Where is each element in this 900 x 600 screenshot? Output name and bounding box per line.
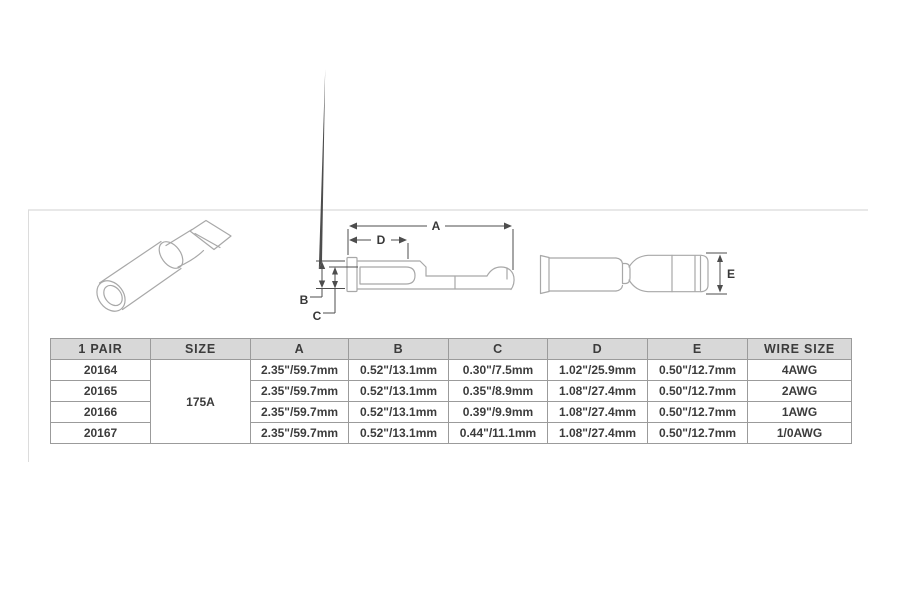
technical-drawing: A D B C bbox=[0, 0, 900, 600]
dim-c-cell: 0.39"/9.9mm bbox=[449, 402, 548, 423]
part-number-cell: 20167 bbox=[51, 423, 151, 444]
dimension-b-label: B bbox=[300, 293, 309, 307]
dim-d-cell: 1.08"/27.4mm bbox=[548, 381, 648, 402]
perspective-view bbox=[91, 221, 231, 317]
dim-d-cell: 1.08"/27.4mm bbox=[548, 423, 648, 444]
dimension-e-label: E bbox=[727, 267, 735, 281]
dimension-c-label: C bbox=[313, 309, 322, 323]
dimension-a-label: A bbox=[432, 219, 441, 233]
size-cell: 175A bbox=[151, 360, 251, 444]
dim-a-cell: 2.35"/59.7mm bbox=[251, 402, 349, 423]
side-view-dimensions: A D B C bbox=[300, 69, 513, 323]
header-row: 1 PAIR SIZE A B C D E WIRE SIZE bbox=[51, 339, 852, 360]
dim-b-cell: 0.52"/13.1mm bbox=[349, 381, 449, 402]
wire-size-cell: 4AWG bbox=[748, 360, 852, 381]
dim-b-cell: 0.52"/13.1mm bbox=[349, 423, 449, 444]
dim-e-cell: 0.50"/12.7mm bbox=[648, 381, 748, 402]
dim-a-cell: 2.35"/59.7mm bbox=[251, 381, 349, 402]
dim-b-cell: 0.52"/13.1mm bbox=[349, 360, 449, 381]
top-view bbox=[541, 255, 709, 293]
part-number-cell: 20164 bbox=[51, 360, 151, 381]
spec-table: 1 PAIR SIZE A B C D E WIRE SIZE 20164 17… bbox=[50, 338, 852, 444]
top-view-dimension: E bbox=[706, 253, 735, 294]
column-header-d: D bbox=[548, 339, 648, 360]
dim-c-cell: 0.30"/7.5mm bbox=[449, 360, 548, 381]
column-header-size: SIZE bbox=[151, 339, 251, 360]
part-number-cell: 20165 bbox=[51, 381, 151, 402]
part-number-cell: 20166 bbox=[51, 402, 151, 423]
dim-d-cell: 1.08"/27.4mm bbox=[548, 402, 648, 423]
dim-c-cell: 0.35"/8.9mm bbox=[449, 381, 548, 402]
dim-c-cell: 0.44"/11.1mm bbox=[449, 423, 548, 444]
dimension-d-label: D bbox=[377, 233, 386, 247]
dim-b-cell: 0.52"/13.1mm bbox=[349, 402, 449, 423]
column-header-c: C bbox=[449, 339, 548, 360]
dim-e-cell: 0.50"/12.7mm bbox=[648, 423, 748, 444]
table-row: 20164 175A 2.35"/59.7mm 0.52"/13.1mm 0.3… bbox=[51, 360, 852, 381]
product-spec-image: A D B C bbox=[0, 0, 900, 600]
dim-d-cell: 1.02"/25.9mm bbox=[548, 360, 648, 381]
wire-size-cell: 2AWG bbox=[748, 381, 852, 402]
dim-a-cell: 2.35"/59.7mm bbox=[251, 423, 349, 444]
wire-size-cell: 1/0AWG bbox=[748, 423, 852, 444]
column-header-a: A bbox=[251, 339, 349, 360]
column-header-wire-size: WIRE SIZE bbox=[748, 339, 852, 360]
column-header-e: E bbox=[648, 339, 748, 360]
dim-e-cell: 0.50"/12.7mm bbox=[648, 402, 748, 423]
wire-size-cell: 1AWG bbox=[748, 402, 852, 423]
dim-a-cell: 2.35"/59.7mm bbox=[251, 360, 349, 381]
dim-e-cell: 0.50"/12.7mm bbox=[648, 360, 748, 381]
column-header-pair: 1 PAIR bbox=[51, 339, 151, 360]
side-view bbox=[347, 258, 514, 292]
column-header-b: B bbox=[349, 339, 449, 360]
